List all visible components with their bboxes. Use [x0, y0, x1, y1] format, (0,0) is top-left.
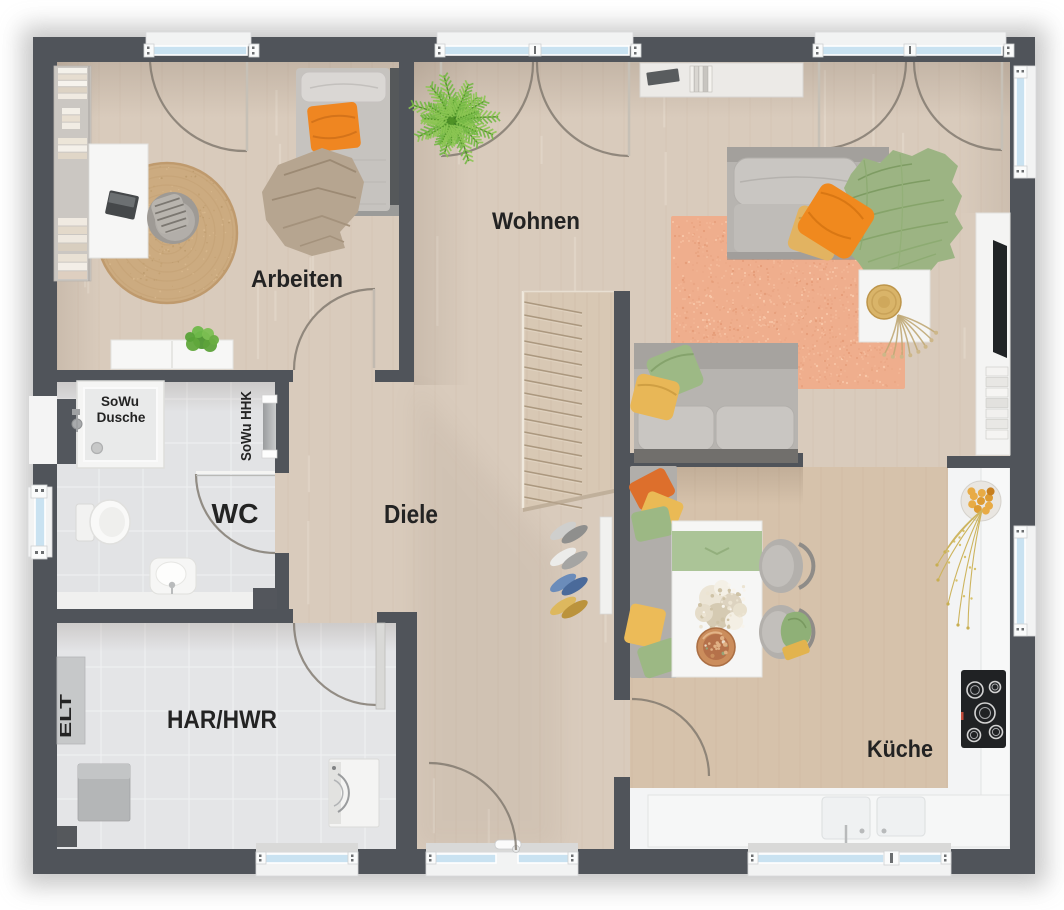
- svg-text:Diele: Diele: [384, 499, 438, 529]
- svg-text:HAR/HWR: HAR/HWR: [167, 706, 277, 734]
- svg-text:WC: WC: [212, 498, 259, 529]
- svg-text:Wohnen: Wohnen: [492, 208, 580, 235]
- svg-text:Arbeiten: Arbeiten: [251, 266, 343, 293]
- svg-text:Dusche: Dusche: [97, 410, 146, 425]
- svg-text:ELT: ELT: [58, 694, 75, 738]
- svg-text:SoWu HHK: SoWu HHK: [238, 391, 255, 461]
- svg-text:SoWu: SoWu: [101, 394, 139, 409]
- svg-text:Küche: Küche: [867, 736, 933, 763]
